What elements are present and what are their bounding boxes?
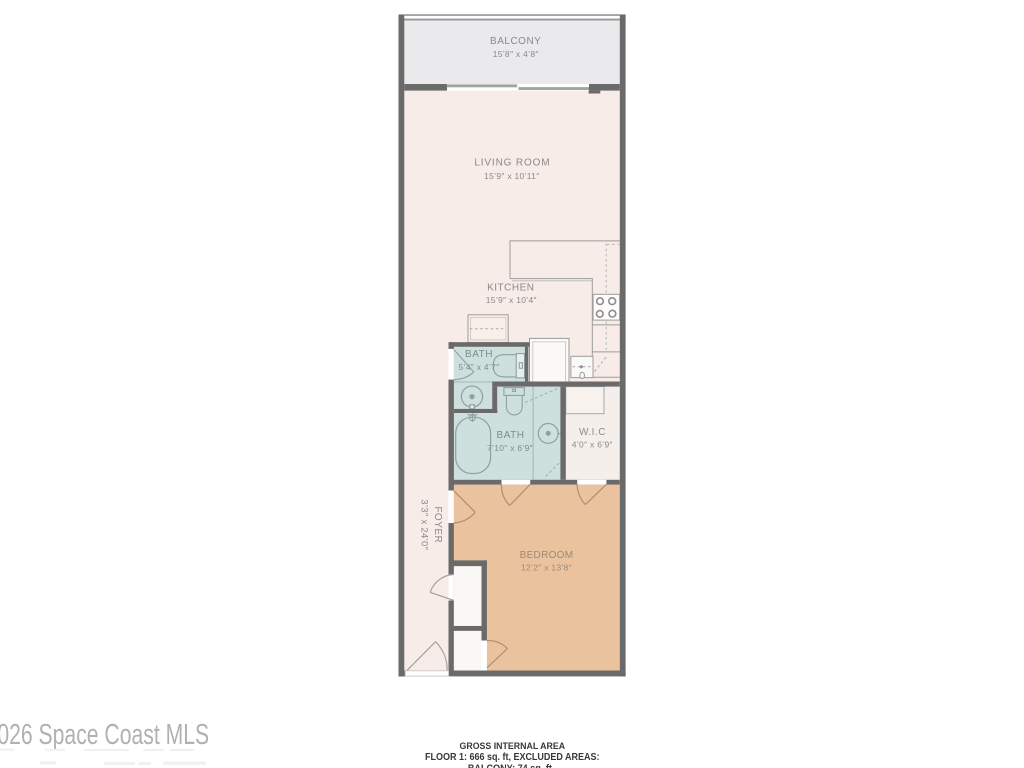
svg-text:FOYER: FOYER bbox=[432, 506, 443, 543]
svg-text:BATH: BATH bbox=[497, 430, 525, 441]
svg-text:4’0″ x 6’9″: 4’0″ x 6’9″ bbox=[572, 440, 613, 450]
svg-text:5’4″ x 4’7″: 5’4″ x 4’7″ bbox=[459, 362, 500, 372]
svg-text:GROSS INTERNAL AREA: GROSS INTERNAL AREA bbox=[460, 741, 566, 751]
svg-text:FLOOR 1: 666 sq. ft, EXCLUDED: FLOOR 1: 666 sq. ft, EXCLUDED AREAS: bbox=[425, 751, 599, 763]
svg-text:3’3″ x 24’0″: 3’3″ x 24’0″ bbox=[418, 499, 429, 550]
svg-text:15’9″ x 10’11″: 15’9″ x 10’11″ bbox=[484, 171, 539, 181]
svg-text:BALCONY: BALCONY bbox=[490, 36, 541, 47]
svg-text:©2026 Space Coast MLS: ©2026 Space Coast MLS bbox=[0, 719, 209, 751]
svg-text:LIVING ROOM: LIVING ROOM bbox=[474, 158, 550, 169]
svg-text:BATH: BATH bbox=[465, 349, 493, 360]
svg-text:12’2″ x 13’8″: 12’2″ x 13’8″ bbox=[521, 562, 572, 572]
svg-text:KITCHEN: KITCHEN bbox=[487, 282, 534, 293]
svg-text:15’8″ x 4’8″: 15’8″ x 4’8″ bbox=[493, 49, 539, 59]
svg-text:BALCONY: 74 sq. ft: BALCONY: 74 sq. ft bbox=[468, 763, 553, 768]
svg-text:15’9″ x 10’4″: 15’9″ x 10’4″ bbox=[486, 295, 537, 305]
svg-text:7’10″ x 6’9″: 7’10″ x 6’9″ bbox=[487, 443, 533, 453]
svg-text:BEDROOM: BEDROOM bbox=[520, 550, 574, 561]
svg-text:W.I.C: W.I.C bbox=[579, 427, 606, 438]
